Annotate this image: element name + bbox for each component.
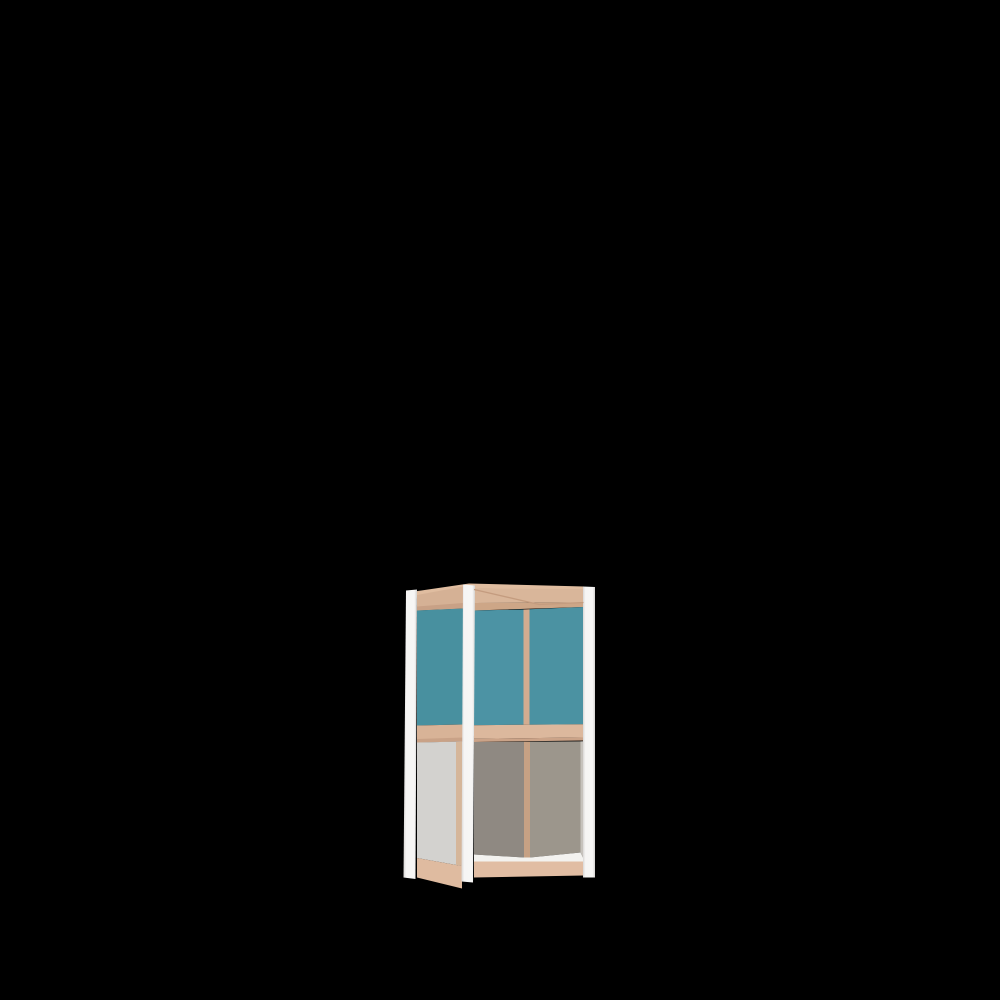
interior-back-gray-right [530, 741, 581, 857]
right-post [583, 587, 595, 878]
front-middle-rail [474, 724, 584, 739]
left-post [404, 590, 418, 880]
front-teal-panel-right [530, 607, 584, 725]
middle-post [462, 585, 476, 883]
left-edge-wood-sliver [456, 742, 462, 866]
interior-wood-divider [524, 742, 530, 858]
page-background [0, 0, 1000, 1000]
interior-back-gray-left [474, 742, 524, 858]
cabinet-3d-render [0, 0, 1000, 1000]
left-teal-panel [417, 609, 463, 726]
front-wood-divider [524, 609, 530, 725]
front-bottom-rail [474, 862, 584, 878]
front-teal-panel-left [474, 610, 524, 726]
cabinet-parts [404, 584, 596, 889]
front-top-rail [474, 589, 584, 604]
